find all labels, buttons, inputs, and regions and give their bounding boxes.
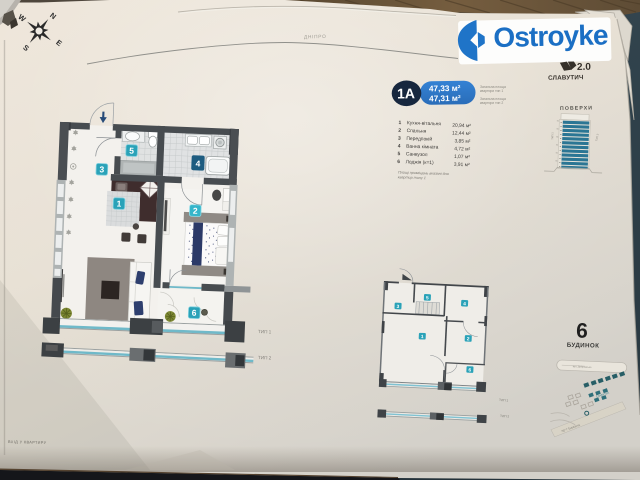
svg-text:ТИП 2: ТИП 2 [258, 355, 272, 361]
svg-text:6: 6 [192, 308, 197, 318]
svg-text:1: 1 [116, 199, 121, 209]
svg-text:Санвузол: Санвузол [406, 151, 428, 158]
svg-text:ПОВЕРХИ: ПОВЕРХИ [560, 105, 593, 112]
svg-text:СЛАВУТИЧ: СЛАВУТИЧ [548, 74, 584, 82]
svg-text:1А: 1А [397, 85, 415, 101]
svg-text:3: 3 [99, 164, 104, 174]
svg-text:6: 6 [397, 159, 400, 165]
svg-text:4: 4 [195, 158, 200, 168]
svg-text:квартири тип 2: квартири тип 2 [480, 101, 503, 105]
svg-text:1: 1 [398, 120, 401, 126]
svg-text:Спальня: Спальня [407, 128, 427, 135]
svg-text:20,94 м²: 20,94 м² [452, 123, 471, 130]
svg-text:ТИП 1: ТИП 1 [550, 132, 554, 140]
svg-text:4,72 м²: 4,72 м² [454, 146, 470, 153]
svg-text:Ostroyke: Ostroyke [493, 19, 608, 53]
svg-text:12,44 м²: 12,44 м² [452, 130, 471, 137]
svg-text:Кухня-вітальня: Кухня-вітальня [407, 120, 442, 127]
svg-text:4: 4 [398, 143, 401, 149]
svg-text:Лоджія (к=1): Лоджія (к=1) [406, 159, 435, 166]
svg-text:5: 5 [129, 145, 134, 155]
svg-text:БУДИНОК: БУДИНОК [567, 342, 600, 350]
svg-text:47,33 м²: 47,33 м² [429, 84, 461, 94]
svg-text:2: 2 [193, 206, 198, 216]
svg-text:квартири тип 1: квартири тип 1 [480, 89, 503, 93]
svg-text:ТИП 1: ТИП 1 [499, 398, 509, 402]
svg-text:2.0: 2.0 [577, 62, 592, 73]
svg-text:1,07 м²: 1,07 м² [454, 154, 470, 161]
svg-text:ДНІПРО: ДНІПРО [304, 34, 327, 41]
svg-text:5: 5 [397, 151, 400, 157]
svg-text:ТИП 1: ТИП 1 [258, 329, 272, 335]
svg-text:47,31 м²: 47,31 м² [429, 94, 461, 104]
svg-text:3,85 м²: 3,85 м² [454, 138, 470, 145]
svg-text:Ванна кімната: Ванна кімната [406, 144, 439, 151]
svg-text:ТИП 2: ТИП 2 [500, 414, 510, 418]
svg-text:2: 2 [398, 128, 401, 134]
svg-text:3,91 м²: 3,91 м² [454, 162, 470, 169]
svg-text:6: 6 [576, 320, 588, 343]
svg-text:3: 3 [398, 136, 401, 142]
